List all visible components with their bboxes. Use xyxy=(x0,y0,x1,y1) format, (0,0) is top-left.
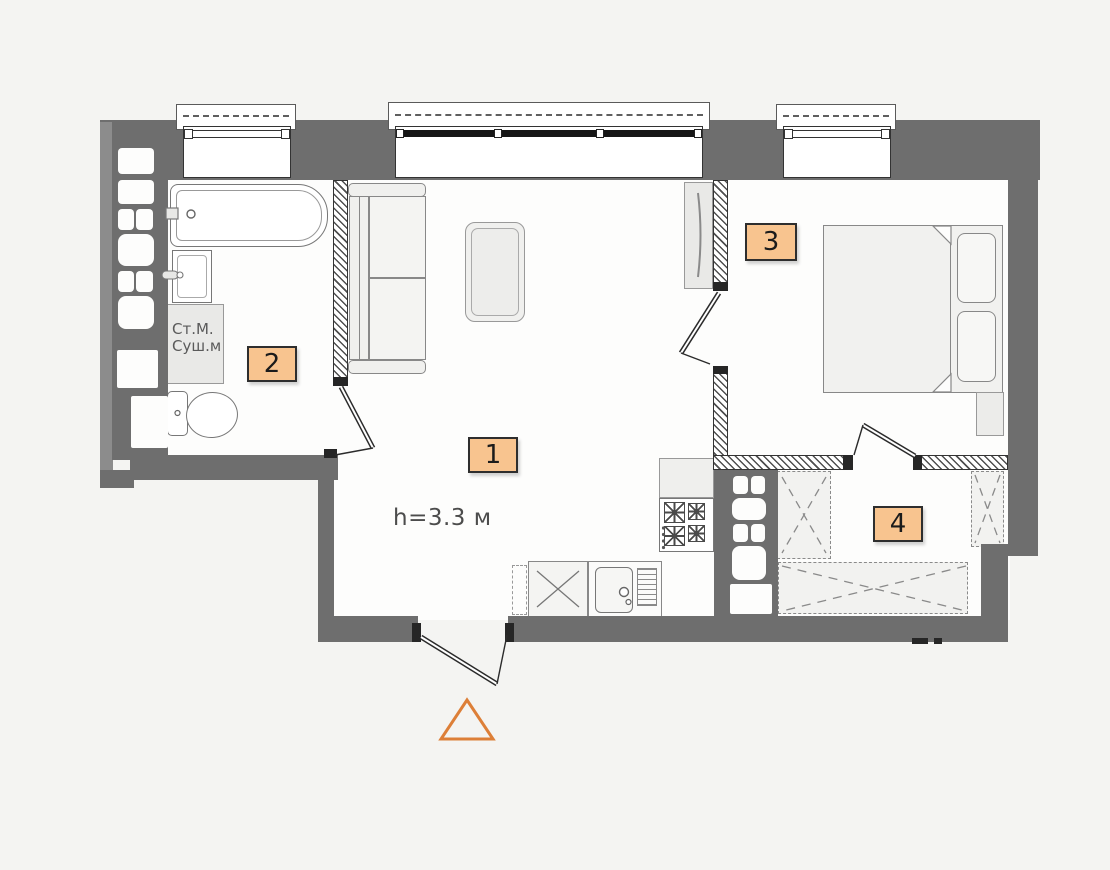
room-label-living-text: 1 xyxy=(485,440,502,470)
wall-bottom-right xyxy=(508,616,1008,642)
wall-bathroom-south xyxy=(130,455,338,480)
closet-left xyxy=(777,471,831,559)
vent-opening xyxy=(751,524,765,542)
tv-panel xyxy=(684,182,713,289)
sofa-seat-2 xyxy=(369,278,426,360)
duct-block-left xyxy=(112,120,168,460)
sofa-armrest-bottom xyxy=(348,360,426,374)
dryer-line: Суш.м xyxy=(172,338,223,355)
kitchen-appliance-slot xyxy=(512,565,527,615)
wall-kitchen-east xyxy=(714,460,726,618)
vent-opening xyxy=(118,209,134,230)
nightstand xyxy=(976,392,1004,436)
washer-line: Ст.М. xyxy=(172,321,223,338)
pillow-2 xyxy=(957,311,996,382)
kitchen-sink-unit xyxy=(588,561,662,617)
wall-right-upper xyxy=(1008,120,1038,552)
door-jamb xyxy=(713,366,728,374)
window-cap xyxy=(396,129,404,138)
vent-opening xyxy=(733,524,748,542)
washer-dryer-box: Ст.М. Суш.м xyxy=(166,304,224,384)
window-bedroom xyxy=(783,126,891,178)
wall-bottom-left xyxy=(318,616,418,642)
window-mullion xyxy=(494,129,502,138)
bathroom-sink xyxy=(172,250,212,303)
window-cap xyxy=(784,129,793,139)
door-jamb xyxy=(333,377,348,386)
shaft-niche xyxy=(117,350,158,388)
duct-block-kitchen xyxy=(726,466,778,618)
room-label-bedroom-text: 3 xyxy=(763,227,780,257)
sofa-backrest-line xyxy=(359,197,360,359)
floor-plan: Ст.М. Суш.м xyxy=(0,0,1110,870)
vent-opening xyxy=(136,271,153,292)
vent-opening xyxy=(751,476,765,494)
window-glass xyxy=(186,130,288,138)
burner xyxy=(664,526,685,546)
bathtub xyxy=(170,184,328,247)
kitchen-sink-bowl xyxy=(595,567,633,613)
room-label-bedroom: 3 xyxy=(745,223,797,261)
vent-opening xyxy=(118,234,154,266)
window-cap xyxy=(881,129,890,139)
window-glass xyxy=(398,130,700,137)
entry-door-swing xyxy=(497,635,507,684)
dimension-tick xyxy=(934,638,942,644)
room-label-wardrobe: 4 xyxy=(873,506,923,542)
balcony-edge-dashes xyxy=(395,114,703,116)
closet-right xyxy=(971,471,1004,547)
shaft-niche xyxy=(730,584,772,614)
hatch-wall-wardrobe-right xyxy=(913,455,1008,470)
wall-right-lower xyxy=(981,552,1008,642)
burner xyxy=(664,502,685,523)
room-label-living: 1 xyxy=(468,437,518,473)
vent-opening xyxy=(136,209,153,230)
window-cap xyxy=(184,129,193,139)
window-glass xyxy=(786,130,888,138)
door-jamb xyxy=(843,455,853,470)
balcony-edge-dashes xyxy=(783,115,889,117)
hatch-wall-wardrobe-left xyxy=(713,455,852,470)
window-cap xyxy=(281,129,290,139)
ceiling-height-note: h=3.3 м xyxy=(393,505,492,531)
pillow-1 xyxy=(957,233,996,303)
entrance-triangle-marker xyxy=(441,700,493,739)
entry-door-leaf xyxy=(421,637,497,684)
vent-opening xyxy=(118,271,134,292)
vent-opening xyxy=(732,546,766,580)
sofa-armrest-top xyxy=(348,183,426,197)
window-living xyxy=(395,126,703,178)
vent-opening xyxy=(118,148,154,174)
coffee-table xyxy=(465,222,525,322)
shaft-niche xyxy=(131,396,168,448)
window-bathroom xyxy=(183,126,291,178)
vent-opening xyxy=(118,296,154,329)
coffee-table-inner xyxy=(471,228,519,316)
wall-hall-west xyxy=(318,470,334,620)
burner xyxy=(688,525,705,542)
window-cap xyxy=(694,129,702,138)
drainboard xyxy=(637,568,657,606)
balcony-edge-dashes xyxy=(183,115,289,117)
kitchen-counter-top-section xyxy=(659,458,714,498)
sofa xyxy=(347,183,428,374)
closet-bottom xyxy=(778,562,968,614)
bed-blanket xyxy=(823,225,951,393)
room-label-wardrobe-text: 4 xyxy=(890,509,907,539)
vent-opening xyxy=(733,476,748,494)
kitchen-cabinet-x xyxy=(528,561,588,617)
wall-left-bottom-cap xyxy=(100,470,134,488)
door-jamb xyxy=(913,455,922,470)
sofa-backrest xyxy=(349,196,369,360)
entry-door-jamb xyxy=(505,623,514,642)
hatch-wall-bathroom-east xyxy=(333,180,348,385)
toilet-tank xyxy=(167,391,188,436)
burner xyxy=(688,503,705,520)
door-jamb xyxy=(713,282,728,291)
bathtub-inner xyxy=(176,190,322,241)
stove xyxy=(659,498,714,552)
washer-dryer-text: Ст.М. Суш.м xyxy=(167,305,223,355)
window-mullion xyxy=(596,129,604,138)
vent-opening xyxy=(732,498,766,520)
entry-door-leaf-inner xyxy=(421,637,497,684)
hatch-wall-bedroom-lower xyxy=(713,366,728,460)
room-label-bathroom-text: 2 xyxy=(264,349,281,379)
bathroom-sink-inner xyxy=(177,255,207,298)
hatch-wall-bedroom-upper xyxy=(713,180,728,290)
dimension-tick xyxy=(912,638,928,644)
vent-opening xyxy=(118,180,154,204)
door-jamb xyxy=(324,449,337,458)
sofa-seat-1 xyxy=(369,196,426,278)
entry-door-jamb xyxy=(412,623,421,642)
room-label-bathroom: 2 xyxy=(247,346,297,382)
